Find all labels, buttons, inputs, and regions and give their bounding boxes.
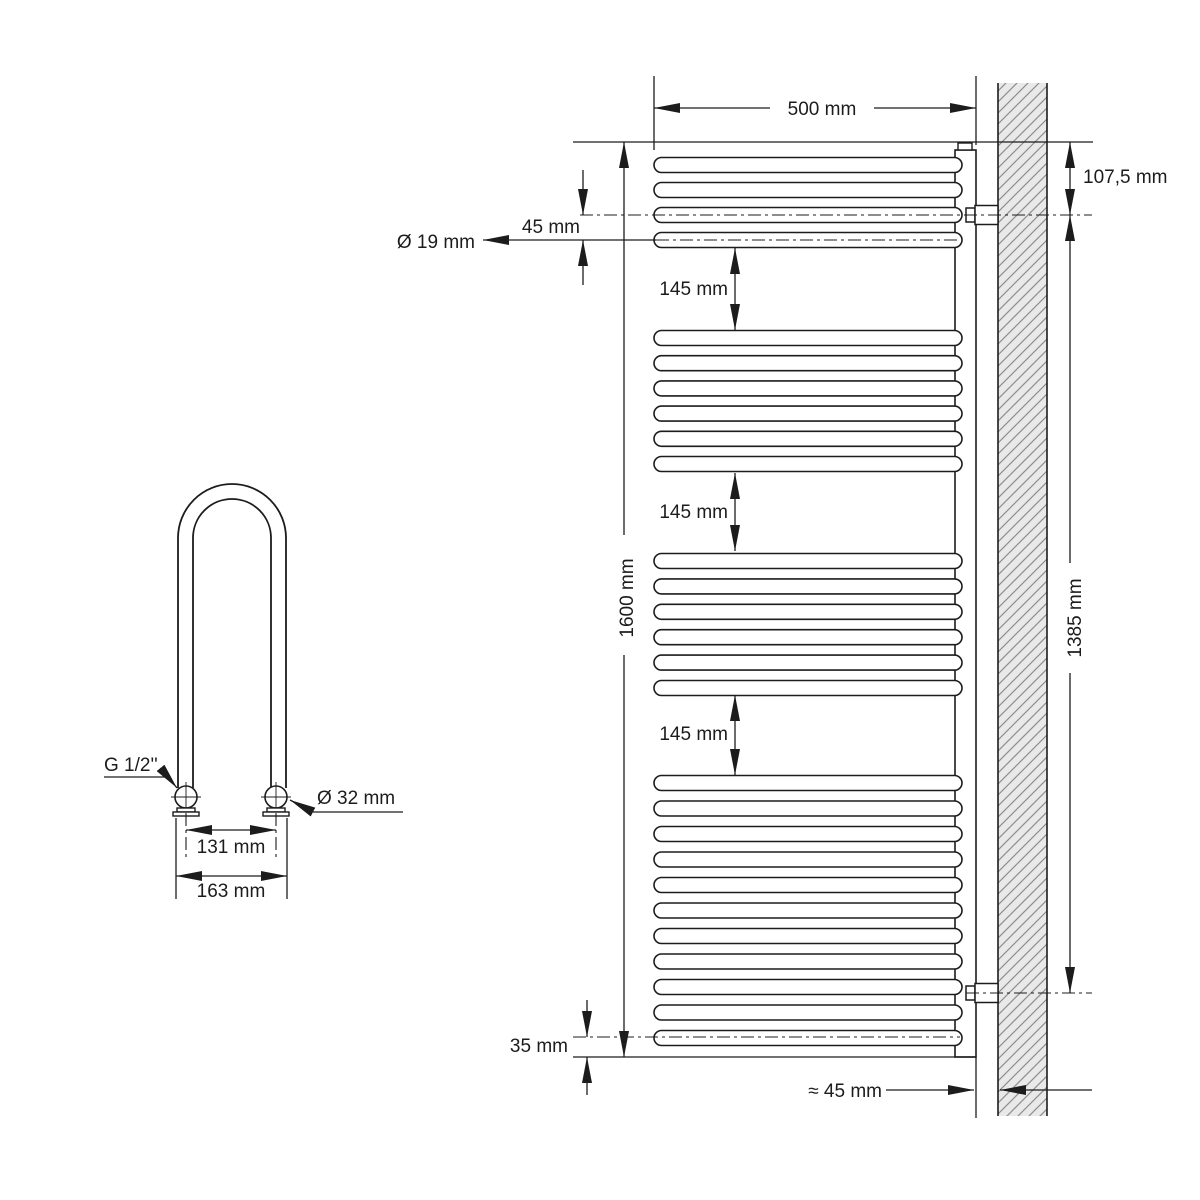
- dim-top-offset-label: 107,5 mm: [1083, 167, 1167, 188]
- dim-tube-pitch-label: 45 mm: [522, 217, 580, 238]
- fitting-dia-leader-arrow: [290, 800, 313, 812]
- radiator-rung: [654, 776, 962, 791]
- vent-cap: [958, 143, 972, 150]
- radiator-rung: [654, 381, 962, 396]
- radiator-rung: [654, 903, 962, 918]
- radiator-rung: [654, 431, 962, 446]
- radiator-rung: [654, 604, 962, 619]
- dim-wall-clearance-label: ≈ 45 mm: [808, 1081, 882, 1102]
- radiator-rung: [654, 554, 962, 569]
- u-tube-inner-wall: [193, 499, 271, 788]
- radiator-rung: [654, 1005, 962, 1020]
- radiator-rung: [654, 954, 962, 969]
- fitting-diameter-label: Ø 32 mm: [317, 788, 395, 809]
- dim-outer-width-label: 163 mm: [197, 881, 266, 902]
- dim-width-label: 500 mm: [788, 99, 857, 120]
- dim-total-height-label: 1600 mm: [617, 558, 638, 637]
- radiator-rung: [654, 630, 962, 645]
- radiator-rung: [654, 331, 962, 346]
- towel-radiator-technical-drawing: 500 mm 107,5 mm 45 mm Ø 19 mm 145 mm 145…: [0, 0, 1200, 1200]
- dim-connection-span-label: 1385 mm: [1065, 578, 1086, 657]
- radiator-rung: [654, 878, 962, 893]
- radiator-rung: [654, 929, 962, 944]
- wall-hatch-area: [998, 83, 1047, 1116]
- radiator-rung: [654, 356, 962, 371]
- page: 500 mm 107,5 mm 45 mm Ø 19 mm 145 mm 145…: [0, 0, 1200, 1200]
- radiator-rung: [654, 801, 962, 816]
- radiator-rung: [654, 183, 962, 198]
- dim-section-gap-label-3: 145 mm: [659, 724, 728, 745]
- radiator-rung: [654, 852, 962, 867]
- radiator-rung: [654, 681, 962, 696]
- radiator-rung: [654, 827, 962, 842]
- thread-label: G 1/2'': [104, 755, 158, 776]
- radiator-rung: [654, 406, 962, 421]
- radiator-rung: [654, 579, 962, 594]
- radiator-rung: [654, 158, 962, 173]
- dim-section-gap-label-2: 145 mm: [659, 502, 728, 523]
- radiator-rung: [654, 457, 962, 472]
- dim-connection-spacing-label: 131 mm: [197, 837, 266, 858]
- wall-section: [998, 83, 1047, 1116]
- fitting-flanges: [173, 808, 289, 816]
- radiator-rung: [654, 1031, 962, 1046]
- tube-diameter-label: Ø 19 mm: [397, 232, 475, 253]
- thread-leader-arrow: [168, 777, 177, 788]
- collector-tube: [955, 150, 976, 1057]
- dim-bottom-offset-label: 35 mm: [510, 1036, 568, 1057]
- dim-section-gap-label-1: 145 mm: [659, 279, 728, 300]
- radiator-rung: [654, 980, 962, 995]
- radiator-rung: [654, 655, 962, 670]
